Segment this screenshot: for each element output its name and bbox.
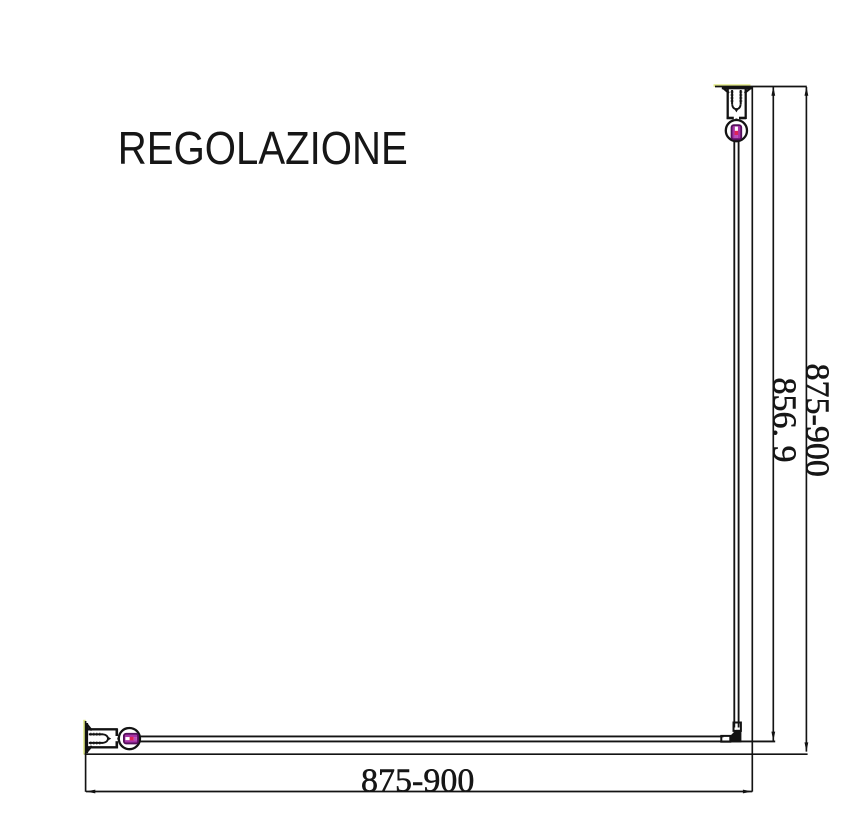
svg-text:875-900: 875-900 [799, 364, 836, 477]
svg-text:875-900: 875-900 [361, 763, 474, 800]
svg-text:856. 9: 856. 9 [765, 378, 802, 463]
svg-text:REGOLAZIONE: REGOLAZIONE [118, 122, 408, 174]
